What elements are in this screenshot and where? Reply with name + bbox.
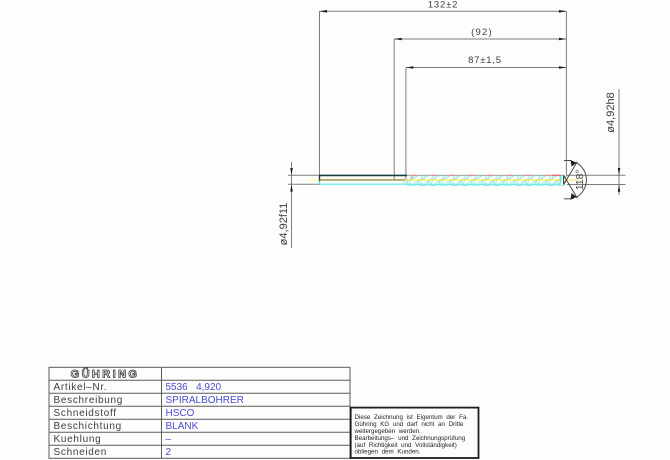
svg-text:ø4,92h8: ø4,92h8 bbox=[605, 92, 617, 132]
svg-text:Schneiden: Schneiden bbox=[54, 447, 108, 458]
svg-text:2: 2 bbox=[166, 447, 172, 458]
svg-text:Artikel–Nr.: Artikel–Nr. bbox=[54, 382, 108, 393]
svg-text:HSCO: HSCO bbox=[166, 408, 195, 419]
svg-text:5536 4,920: 5536 4,920 bbox=[166, 382, 222, 393]
svg-text:87±1,5: 87±1,5 bbox=[468, 55, 502, 66]
svg-text:118°: 118° bbox=[575, 170, 586, 191]
svg-text:–: – bbox=[166, 434, 172, 445]
svg-text:(92): (92) bbox=[471, 27, 493, 38]
svg-text:GÜHRING: GÜHRING bbox=[71, 368, 140, 381]
svg-text:BLANK: BLANK bbox=[166, 421, 199, 432]
svg-text:Beschreibung: Beschreibung bbox=[54, 395, 124, 406]
svg-text:Kuehlung: Kuehlung bbox=[54, 434, 102, 445]
svg-text:Schneidstoff: Schneidstoff bbox=[54, 408, 117, 419]
svg-text:ø4,92f11: ø4,92f11 bbox=[278, 203, 290, 246]
svg-text:Beschichtung: Beschichtung bbox=[54, 421, 122, 432]
svg-text:SPIRALBOHRER: SPIRALBOHRER bbox=[166, 395, 244, 406]
svg-text:obliegen dem Kunden.: obliegen dem Kunden. bbox=[355, 449, 421, 456]
svg-text:132±2: 132±2 bbox=[428, 0, 458, 11]
